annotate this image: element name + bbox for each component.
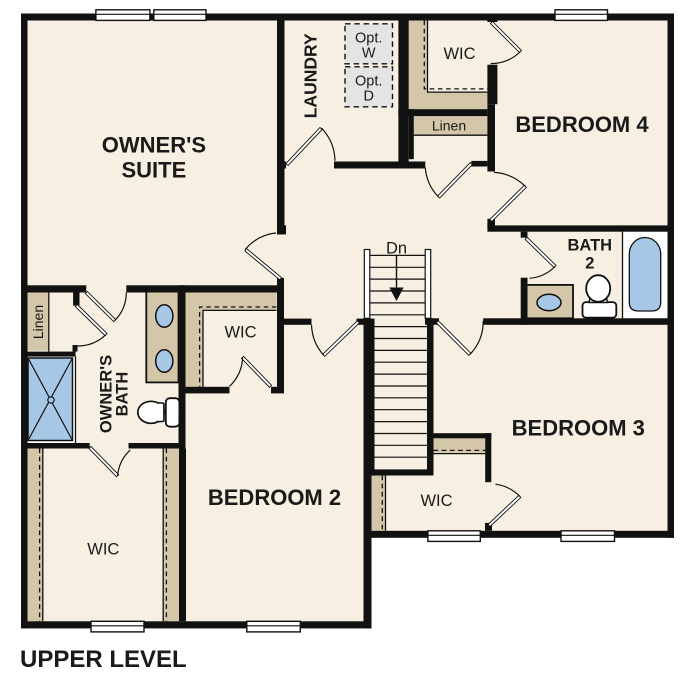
svg-text:WIC: WIC xyxy=(224,324,256,342)
svg-text:Dn: Dn xyxy=(386,239,407,257)
svg-text:Opt.: Opt. xyxy=(355,73,382,89)
svg-text:Linen: Linen xyxy=(432,117,466,133)
svg-text:BEDROOM 3: BEDROOM 3 xyxy=(512,415,645,440)
svg-text:Linen: Linen xyxy=(30,305,46,339)
svg-text:SUITE: SUITE xyxy=(122,157,187,182)
svg-text:WIC: WIC xyxy=(420,492,452,510)
svg-text:WIC: WIC xyxy=(87,541,119,559)
svg-text:LAUNDRY: LAUNDRY xyxy=(301,33,321,118)
svg-text:Opt.: Opt. xyxy=(355,30,382,46)
svg-text:WIC: WIC xyxy=(443,45,475,63)
svg-text:OWNER'S: OWNER'S xyxy=(102,133,206,158)
svg-text:UPPER LEVEL: UPPER LEVEL xyxy=(20,646,187,673)
svg-text:D: D xyxy=(363,88,373,104)
svg-text:BEDROOM 2: BEDROOM 2 xyxy=(208,485,341,510)
svg-text:W: W xyxy=(362,45,376,61)
svg-text:BATH: BATH xyxy=(567,237,612,255)
svg-text:BEDROOM 4: BEDROOM 4 xyxy=(515,112,649,137)
svg-text:BATH: BATH xyxy=(114,372,132,417)
svg-text:2: 2 xyxy=(585,254,594,272)
